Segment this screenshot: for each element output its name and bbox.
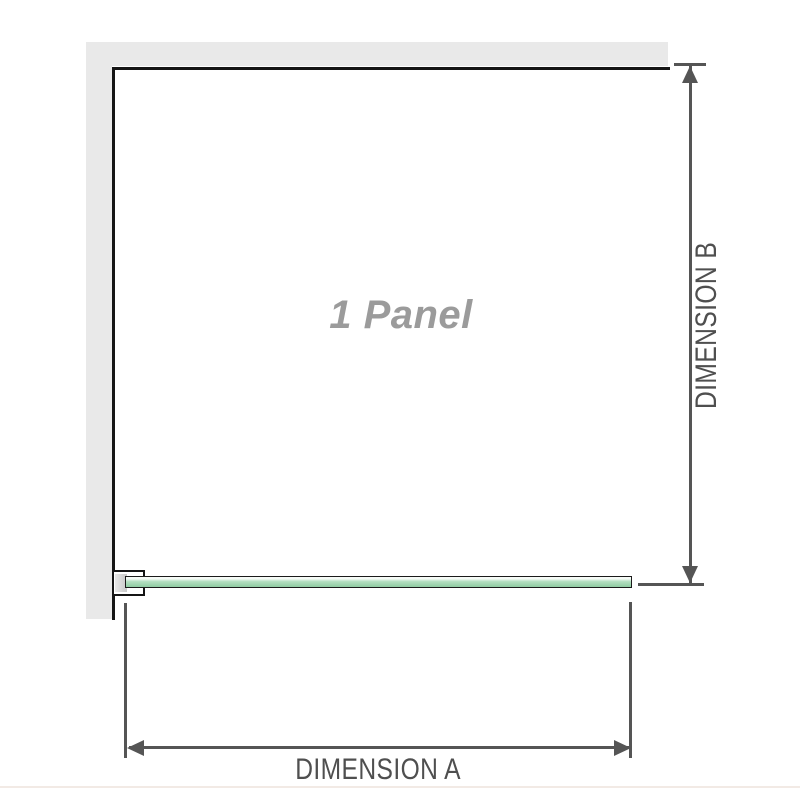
dimension-a-label-wrap: DIMENSION A xyxy=(126,755,630,785)
arrow-left-icon xyxy=(127,740,144,756)
arrow-down-icon xyxy=(682,566,698,583)
wall-top-edge-line xyxy=(112,67,670,70)
wall-left-edge-line xyxy=(112,67,115,620)
dimension-a-label: DIMENSION A xyxy=(295,755,461,785)
panel-count-label-wrap: 1 Panel xyxy=(121,295,681,335)
wall-left xyxy=(86,42,112,619)
dimension-b-bottom-cap xyxy=(638,583,704,586)
wall-top xyxy=(86,42,668,66)
panel-count-label: 1 Panel xyxy=(329,295,473,335)
dimension-a-right-extension-line xyxy=(629,602,632,758)
glass-panel xyxy=(125,576,632,588)
arrow-right-icon xyxy=(614,740,631,756)
dimension-a-line xyxy=(129,746,629,749)
arrow-up-icon xyxy=(682,66,698,83)
dimension-a-left-extension-line xyxy=(124,603,127,758)
dimension-b-label: DIMENSION B xyxy=(692,242,722,409)
shower-panel-diagram: 1 Panel DIMENSION B DIMENSION A xyxy=(0,0,800,800)
footer-hairline xyxy=(0,786,800,788)
